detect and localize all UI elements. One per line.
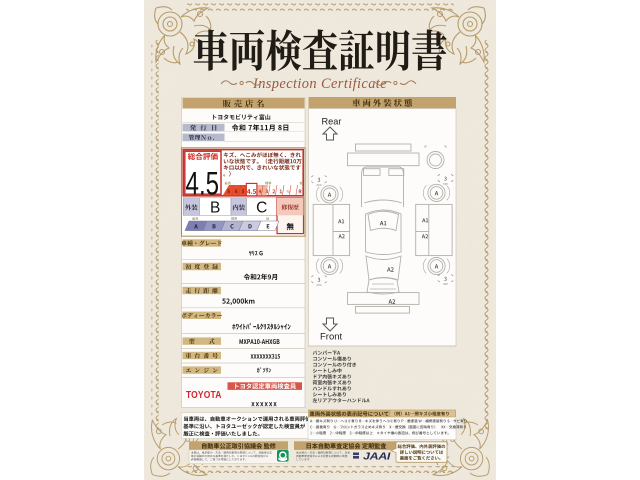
- svg-text:Front: Front: [320, 332, 343, 343]
- svg-text:Rear: Rear: [322, 117, 342, 127]
- svg-text:JAAI: JAAI: [363, 451, 392, 463]
- svg-text:4.5: 4.5: [186, 165, 220, 201]
- svg-text:B: B: [210, 200, 220, 217]
- svg-text:C: C: [256, 200, 267, 217]
- svg-text:Inspection Certificate: Inspection Certificate: [252, 76, 387, 92]
- svg-text:TOYOTA: TOYOTA: [186, 390, 222, 401]
